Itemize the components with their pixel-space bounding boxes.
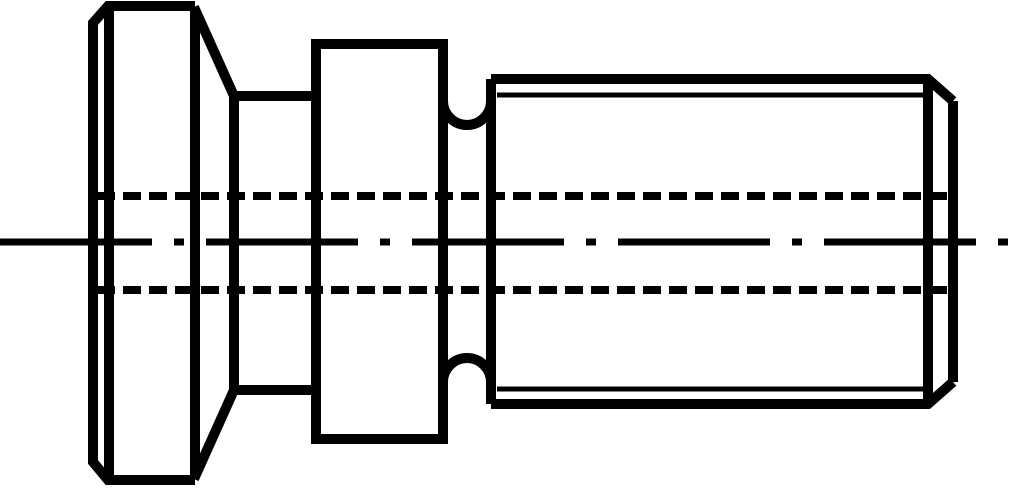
technical-drawing-stage [0,0,1024,492]
undercut-upper-arc [443,101,491,125]
undercut-lower-arc [443,358,491,382]
technical-drawing-svg [0,0,1024,492]
shank-lower-silhouette [491,382,953,404]
shank-upper-silhouette [491,79,953,101]
